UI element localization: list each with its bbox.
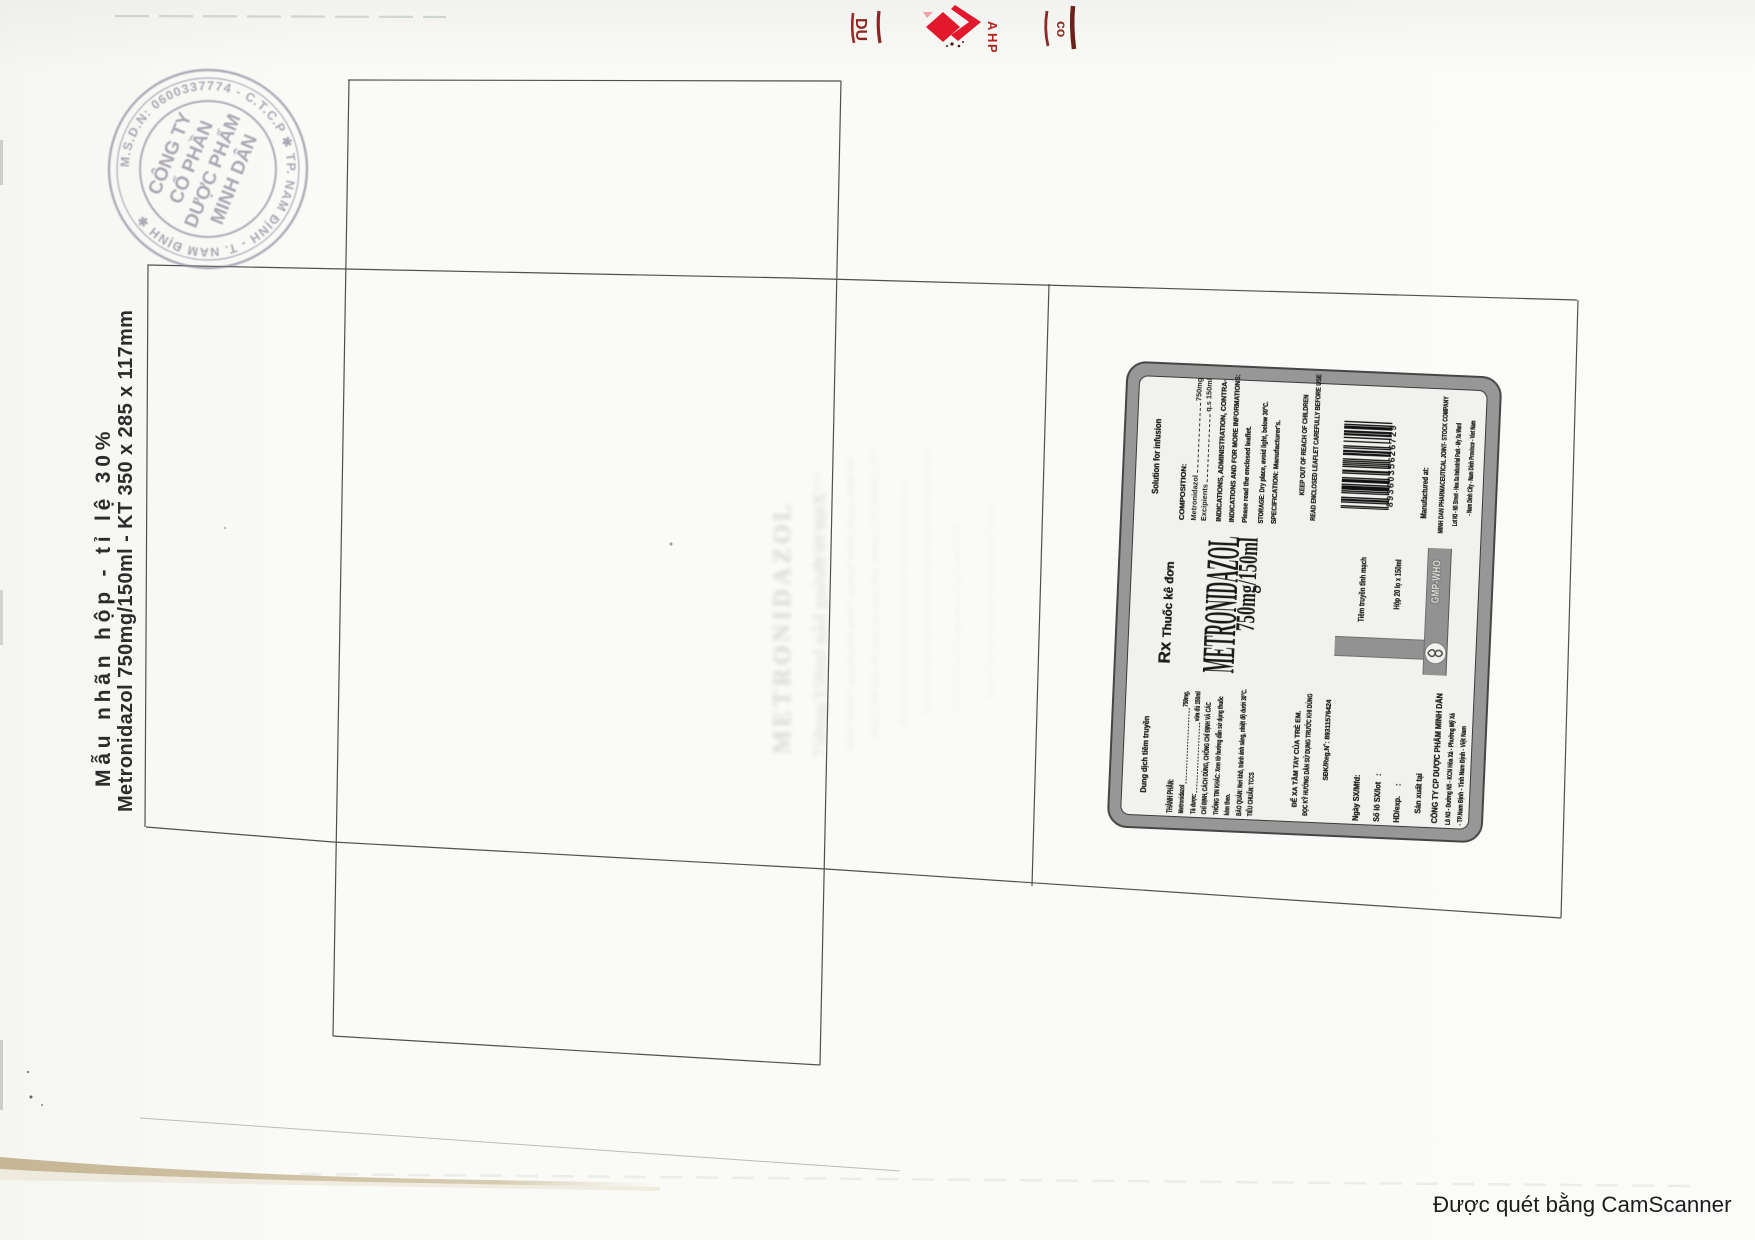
svg-text:750mg/150ml: 750mg/150ml [1230, 537, 1263, 632]
svg-text:P: P [985, 44, 1000, 52]
svg-text:H: H [985, 33, 1000, 42]
svg-text:co: co [1054, 21, 1070, 37]
svg-text:DU: DU [852, 18, 869, 41]
svg-text:A: A [985, 21, 1000, 31]
